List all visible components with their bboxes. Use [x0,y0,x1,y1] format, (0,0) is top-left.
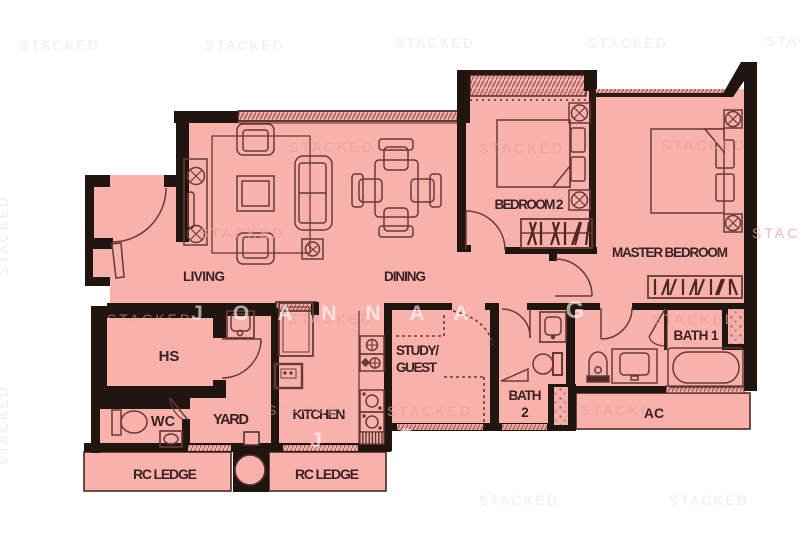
svg-text:DINING: DINING [384,269,426,284]
svg-text:O: O [398,425,414,448]
svg-text:STACKED: STACKED [395,36,475,51]
svg-text:STACKED: STACKED [766,34,800,49]
svg-text:J: J [191,302,203,325]
svg-text:STACKED: STACKED [289,139,375,155]
svg-text:STACKED: STACKED [199,225,285,241]
svg-text:N: N [365,302,380,325]
svg-text:STACKED: STACKED [652,311,738,327]
svg-text:MASTER BEDROOM: MASTER BEDROOM [612,245,728,260]
svg-text:STACKED: STACKED [588,36,668,51]
svg-text:HS: HS [159,348,180,365]
svg-text:STACKED: STACKED [752,225,800,241]
svg-text:A: A [409,302,424,325]
svg-text:STACKED: STACKED [479,493,559,508]
svg-text:RC LEDGE: RC LEDGE [295,466,359,482]
svg-text:STACKED: STACKED [669,493,749,508]
svg-text:GUEST: GUEST [396,360,438,375]
svg-text:STACKED: STACKED [267,402,353,418]
svg-text:J: J [310,429,322,452]
svg-text:STACKED: STACKED [205,38,285,53]
svg-text:STACKED: STACKED [387,403,473,419]
svg-text:STACKED: STACKED [107,311,193,327]
svg-text:STACKED: STACKED [0,385,11,465]
svg-text:WC: WC [151,414,176,430]
svg-text:A: A [453,302,468,325]
svg-text:STUDY/: STUDY/ [396,343,439,358]
svg-text:O: O [233,302,249,325]
svg-text:2: 2 [521,405,529,420]
svg-text:BEDROOM 2: BEDROOM 2 [495,197,564,212]
svg-text:STACKED: STACKED [661,137,747,153]
svg-text:BATH 1: BATH 1 [674,328,719,343]
svg-text:G: G [566,297,585,324]
svg-text:STACKED: STACKED [20,38,100,53]
svg-text:STACKI: STACKI [580,402,648,418]
svg-text:BATH: BATH [509,388,542,403]
svg-text:A: A [277,302,292,325]
svg-text:RC LEDGE: RC LEDGE [133,466,197,482]
svg-text:STACKED: STACKED [479,140,565,156]
svg-text:STACKED: STACKED [0,195,11,275]
svg-text:N: N [321,302,336,325]
svg-text:LIVING: LIVING [183,269,225,284]
svg-text:YARD: YARD [213,412,249,428]
